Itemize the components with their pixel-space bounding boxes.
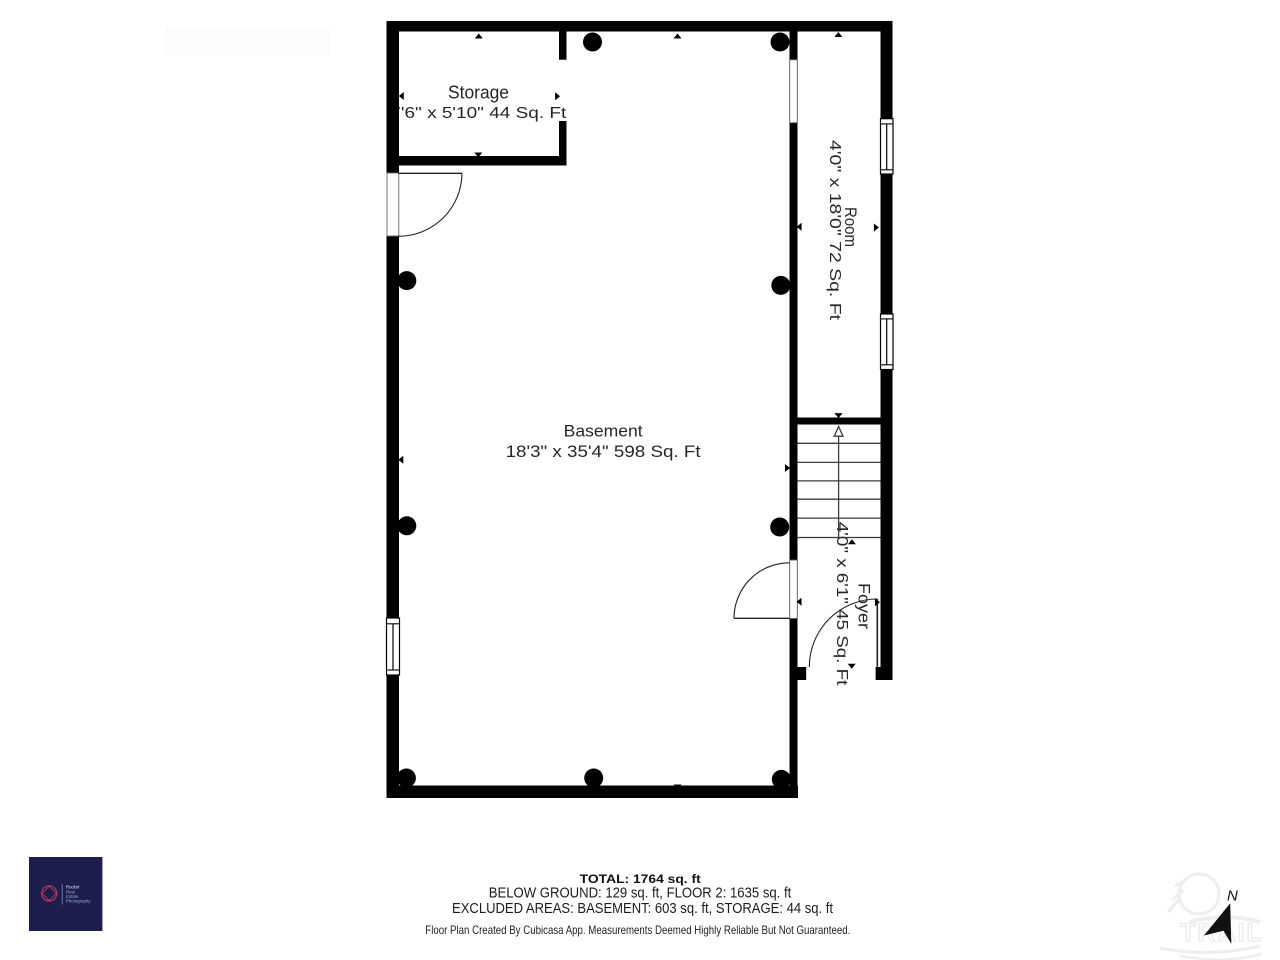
svg-text:Foyer: Foyer (855, 583, 874, 629)
svg-text:Basement: Basement (564, 421, 643, 440)
svg-text:BELOW GROUND: 129 sq. ft, FLOO: BELOW GROUND: 129 sq. ft, FLOOR 2: 1635 … (489, 886, 792, 902)
svg-text:EXCLUDED AREAS: BASEMENT: 603: EXCLUDED AREAS: BASEMENT: 603 sq. ft, ST… (452, 901, 833, 917)
svg-text:TOTAL: 1764 sq. ft: TOTAL: 1764 sq. ft (580, 872, 701, 886)
svg-text:Storage: Storage (448, 82, 509, 102)
svg-text:N: N (1227, 888, 1238, 905)
svg-text:Floor Plan Created By Cubicasa: Floor Plan Created By Cubicasa App. Meas… (425, 923, 850, 937)
svg-text:Photography: Photography (66, 899, 91, 904)
svg-text:4'0" x 18'0" 72 Sq. Ft: 4'0" x 18'0" 72 Sq. Ft (826, 140, 843, 321)
svg-text:4'0" x 6'1" 45 Sq. Ft: 4'0" x 6'1" 45 Sq. Ft (833, 522, 850, 686)
svg-text:18'3" x 35'4" 598 Sq. Ft: 18'3" x 35'4" 598 Sq. Ft (506, 442, 701, 461)
svg-text:7'6" x 5'10" 44 Sq. Ft: 7'6" x 5'10" 44 Sq. Ft (390, 105, 567, 122)
